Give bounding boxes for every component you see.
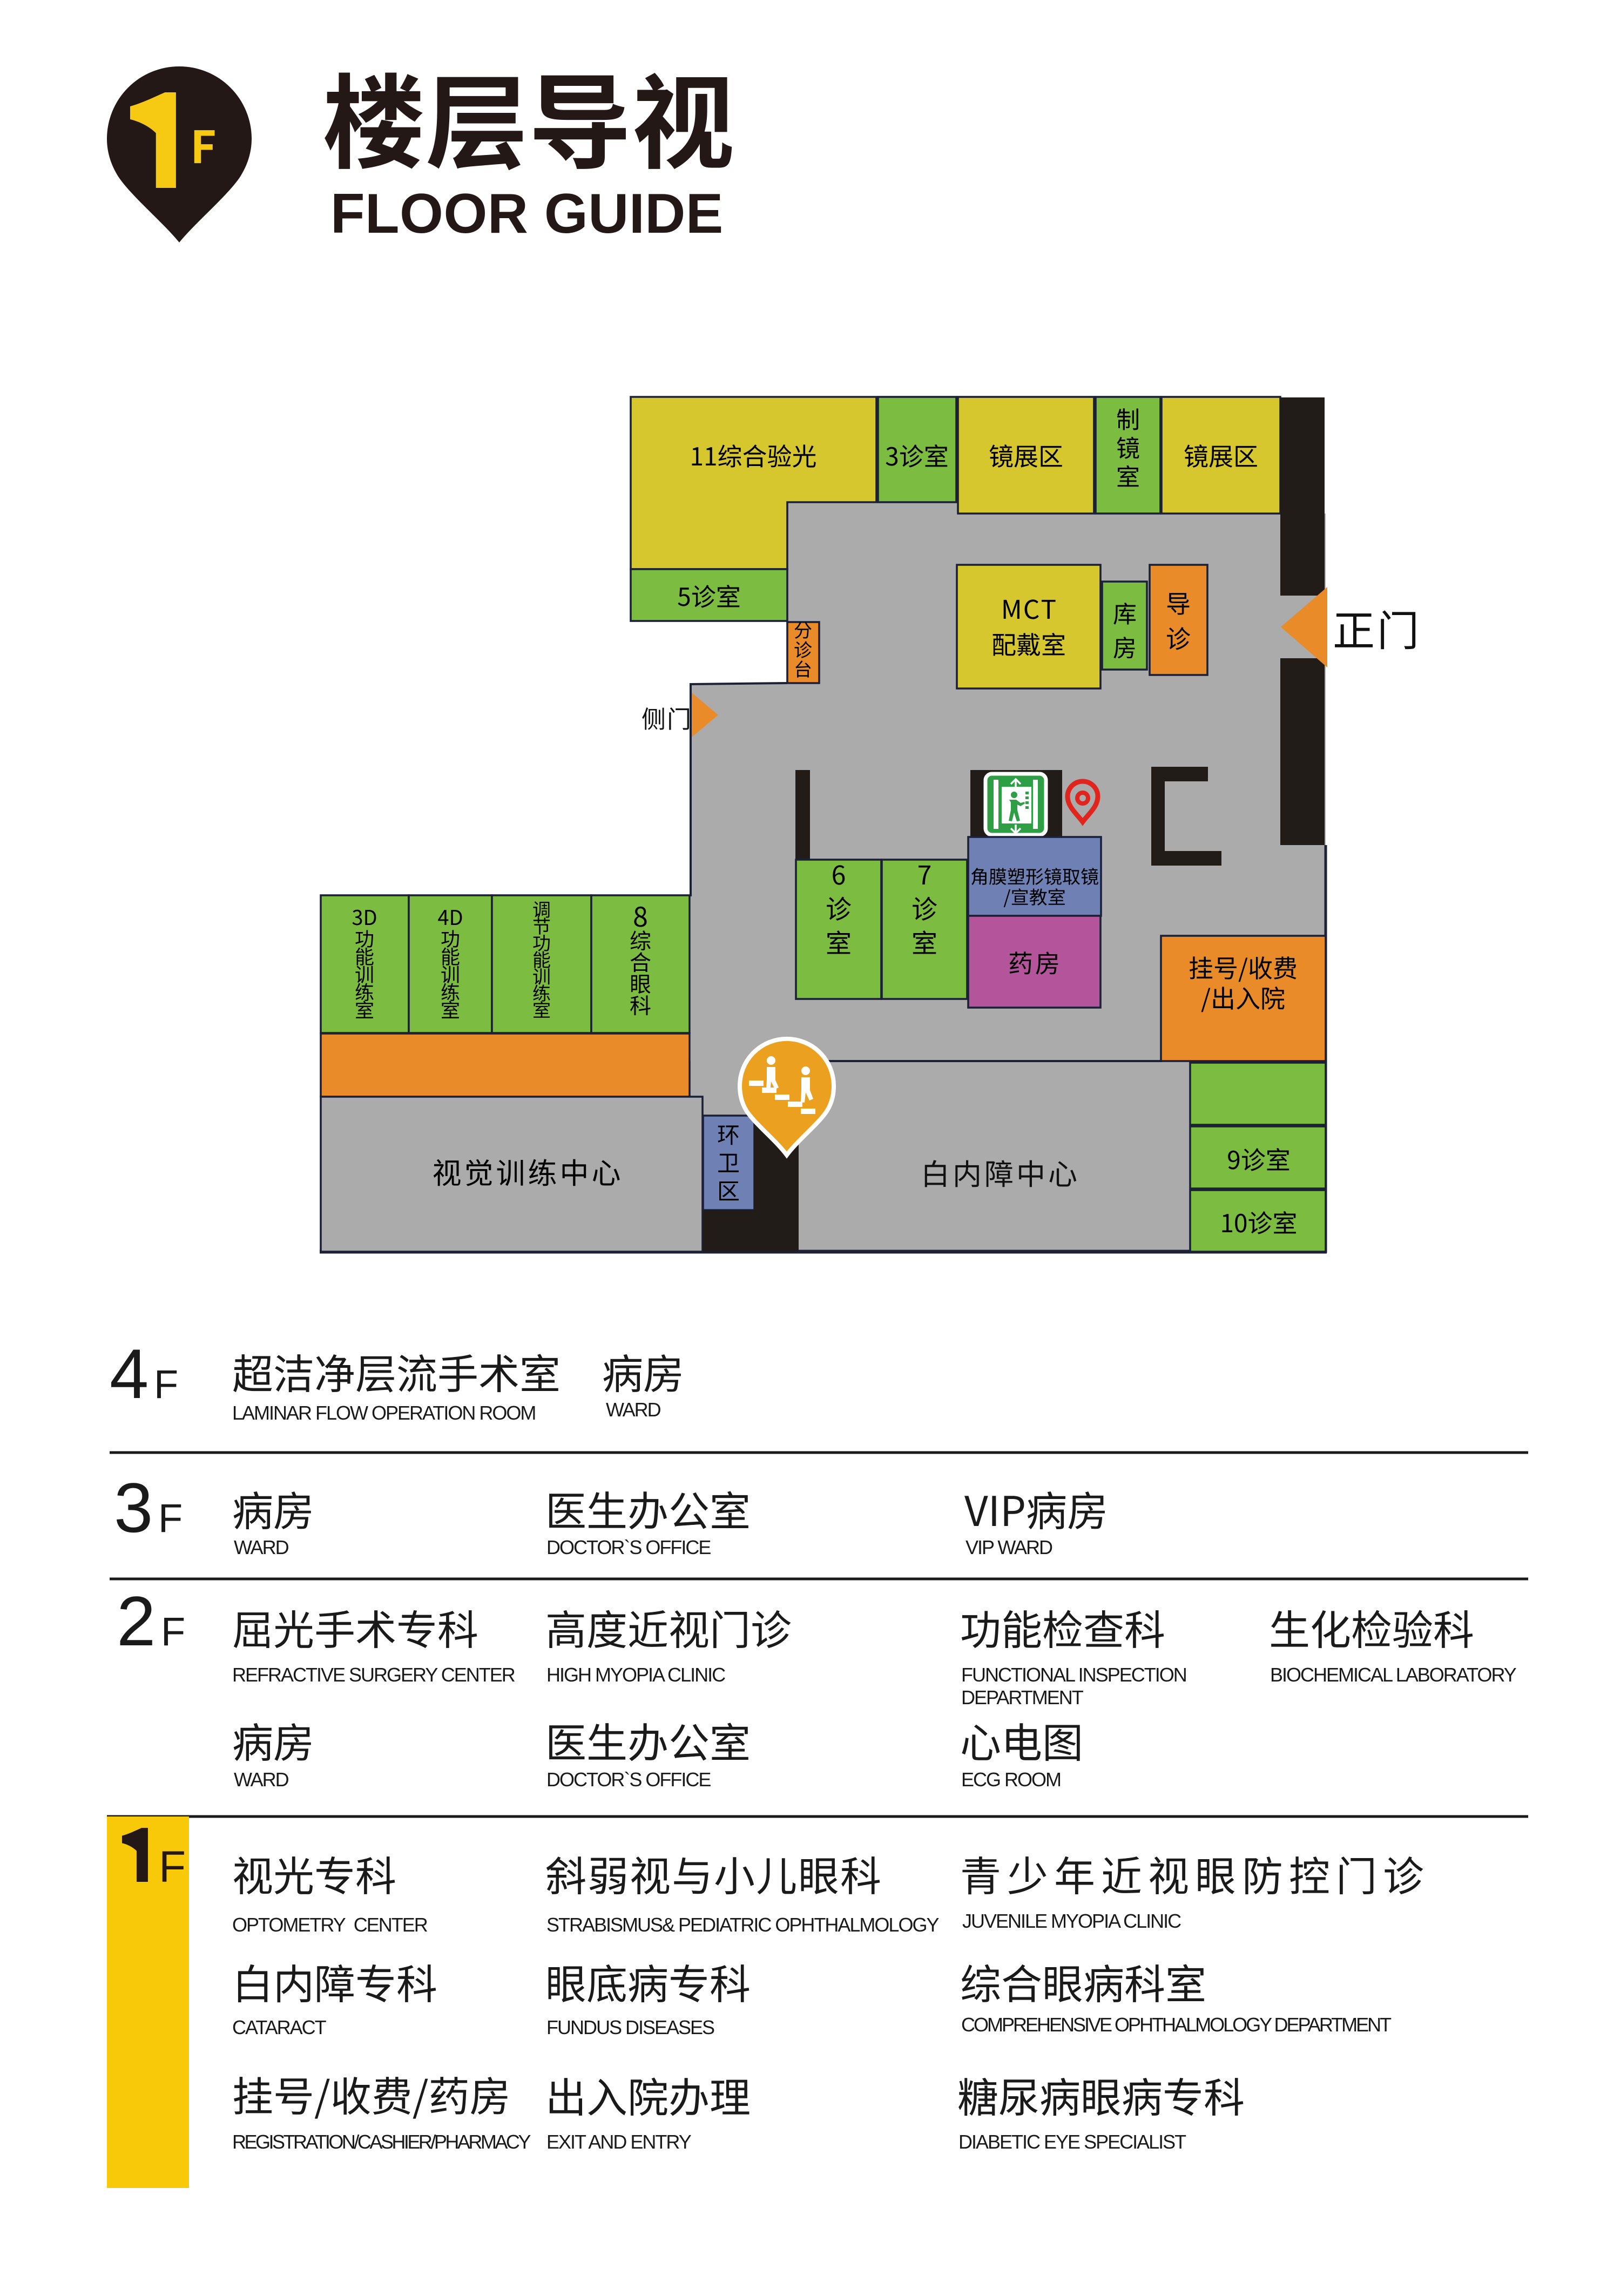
- svg-text:STRABISMUS& PEDIATRIC OPHTHALM: STRABISMUS& PEDIATRIC OPHTHALMOLOGY: [546, 1914, 939, 1936]
- svg-text:COMPREHENSIVE OPHTHALMOLOGY DE: COMPREHENSIVE OPHTHALMOLOGY DEPARTMENT: [961, 2014, 1392, 2036]
- svg-text:FUNDUS DISEASES: FUNDUS DISEASES: [546, 2016, 714, 2038]
- svg-text:F: F: [161, 1609, 185, 1654]
- svg-text:EXIT AND ENTRY: EXIT AND ENTRY: [546, 2131, 692, 2153]
- svg-text:DOCTOR`S OFFICE: DOCTOR`S OFFICE: [546, 1536, 711, 1558]
- svg-text:HIGH MYOPIA CLINIC: HIGH MYOPIA CLINIC: [546, 1664, 725, 1686]
- svg-text:F: F: [159, 1842, 186, 1892]
- svg-text:LAMINAR FLOW OPERATION ROOM: LAMINAR FLOW OPERATION ROOM: [232, 1402, 535, 1424]
- svg-text:F: F: [158, 1496, 183, 1541]
- svg-text:REGISTRATION/CASHIER/PHARMACY: REGISTRATION/CASHIER/PHARMACY: [232, 2131, 531, 2153]
- svg-text:BIOCHEMICAL LABORATORY: BIOCHEMICAL LABORATORY: [1270, 1664, 1517, 1686]
- svg-text:DOCTOR`S OFFICE: DOCTOR`S OFFICE: [546, 1768, 711, 1791]
- svg-text:FLOOR GUIDE: FLOOR GUIDE: [330, 183, 724, 245]
- svg-text:DEPARTMENT: DEPARTMENT: [961, 1686, 1084, 1709]
- svg-text:4: 4: [110, 1334, 148, 1413]
- svg-text:F: F: [154, 1362, 178, 1407]
- svg-text:VIP WARD: VIP WARD: [965, 1536, 1052, 1558]
- svg-text:3: 3: [114, 1468, 153, 1547]
- svg-text:REFRACTIVE SURGERY CENTER: REFRACTIVE SURGERY CENTER: [232, 1664, 515, 1686]
- svg-text:WARD: WARD: [234, 1768, 289, 1791]
- svg-text:ECG ROOM: ECG ROOM: [961, 1768, 1061, 1791]
- svg-text:CATARACT: CATARACT: [232, 2016, 327, 2038]
- svg-text:DIABETIC EYE SPECIALIST: DIABETIC EYE SPECIALIST: [958, 2131, 1186, 2153]
- svg-text:2: 2: [117, 1582, 156, 1660]
- svg-text:JUVENILE MYOPIA CLINIC: JUVENILE MYOPIA CLINIC: [962, 1910, 1181, 1932]
- svg-text:OPTOMETRY CENTER: OPTOMETRY CENTER: [232, 1914, 428, 1936]
- svg-text:WARD: WARD: [234, 1536, 289, 1558]
- svg-text:WARD: WARD: [606, 1399, 661, 1421]
- svg-text:FUNCTIONAL INSPECTION: FUNCTIONAL INSPECTION: [961, 1664, 1186, 1686]
